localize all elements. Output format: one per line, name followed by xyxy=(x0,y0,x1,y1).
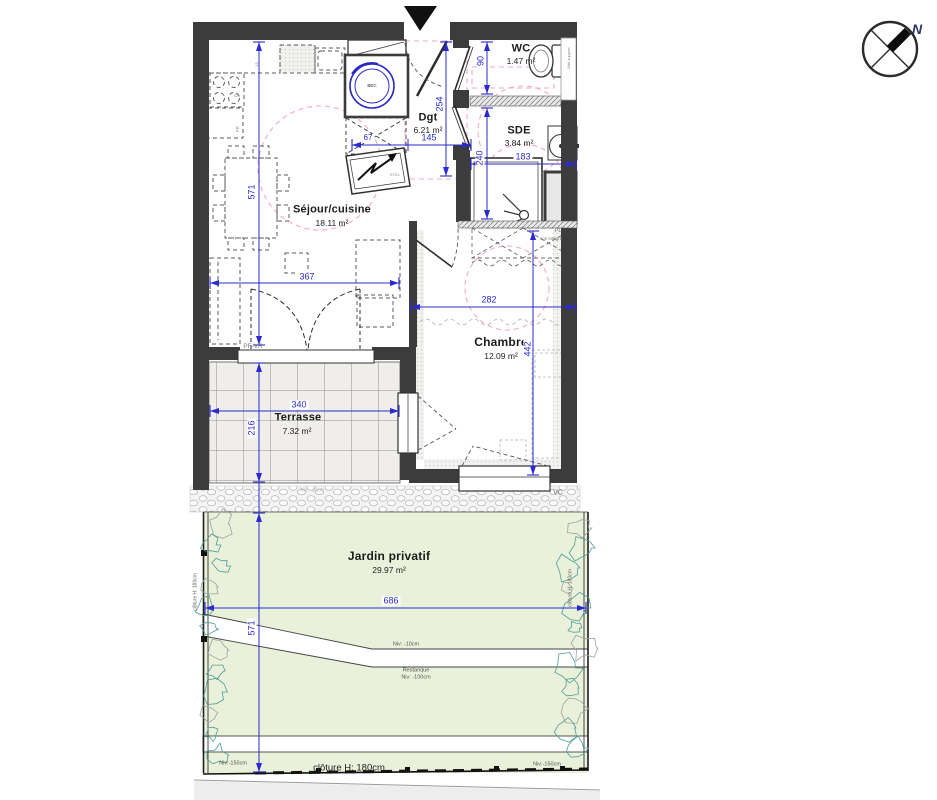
dim-dgt-width: 145 xyxy=(419,134,438,143)
dim-dgt-height: 254 xyxy=(436,94,445,113)
room-label-sejour: Séjour/cuisine xyxy=(293,205,371,216)
annotation-niv-jardin: Niv: -10cm xyxy=(393,642,419,648)
annotation-pf-vr: PF-VR xyxy=(243,344,263,351)
compass-icon xyxy=(863,22,917,76)
floor-plan-canvas: WC 1.47 m² Dgt 6.21 m² SDE 3.84 m² Séjou… xyxy=(0,0,937,800)
dim-jardin-height: 571 xyxy=(248,618,257,637)
room-label-jardin: Jardin privatif xyxy=(348,550,430,562)
annotation-pl-sub: non intégré xyxy=(540,237,563,242)
annotation-ll: LL xyxy=(255,61,260,66)
room-label-dgt: Dgt xyxy=(419,113,438,124)
dim-sejour-height: 571 xyxy=(248,182,257,201)
dim-jardin-width: 686 xyxy=(381,597,400,606)
entrance-arrow-icon xyxy=(404,6,437,31)
dim-chambre-height: 442 xyxy=(524,339,533,358)
annotation-cu: Cu xyxy=(234,94,240,99)
room-label-terrasse: Terrasse xyxy=(275,413,322,424)
annotation-niv-right: Niv:-150cm xyxy=(533,762,561,768)
room-area-chambre: 12.09 m² xyxy=(484,352,518,361)
annotation-etel: ETEL xyxy=(390,173,400,177)
annotation-bec: BEC xyxy=(367,84,376,89)
dim-terrasse-width: 340 xyxy=(289,401,308,410)
dim-placard-width: 67 xyxy=(362,134,375,142)
annotation-pl: PL xyxy=(554,228,561,234)
annotation-cloture-bottom: clôture H: 180cm xyxy=(313,763,385,773)
room-area-terrasse: 7.32 m² xyxy=(283,427,312,436)
room-area-wc: 1.47 m² xyxy=(507,57,536,66)
plan-graphics xyxy=(0,0,937,800)
room-label-sde: SDE xyxy=(507,126,530,137)
room-label-chambre: Chambre xyxy=(474,336,527,348)
annotation-cloture-left: clôture H: 180cm xyxy=(194,573,199,611)
compass-north-label: N xyxy=(912,22,922,36)
room-area-jardin: 29.97 m² xyxy=(372,566,406,575)
dim-wc-height: 90 xyxy=(477,54,486,68)
annotation-bati-support: Bâti support xyxy=(567,47,571,68)
dim-chambre-width: 282 xyxy=(479,296,498,305)
room-label-wc: WC xyxy=(512,44,531,55)
annotation-vc: VC xyxy=(553,490,563,497)
annotation-restanque: Restanque xyxy=(403,668,430,674)
dim-sde-height: 240 xyxy=(476,148,485,167)
annotation-niv-terrasse: Niv: -10cm xyxy=(300,489,324,494)
annotation-niv-restanque: Niv: -100cm xyxy=(401,675,430,681)
annotation-cloture-right: clôture H: 180cm xyxy=(569,569,574,607)
dim-sejour-width: 367 xyxy=(297,273,316,282)
dim-terrasse-height: 216 xyxy=(248,418,257,437)
annotation-fr: FR xyxy=(236,126,241,132)
annotation-niv-left: Niv:-150cm xyxy=(219,761,247,767)
dim-sde-width: 183 xyxy=(513,153,532,162)
room-area-sde: 3.84 m² xyxy=(505,139,534,148)
room-area-sejour: 18.11 m² xyxy=(316,219,349,228)
